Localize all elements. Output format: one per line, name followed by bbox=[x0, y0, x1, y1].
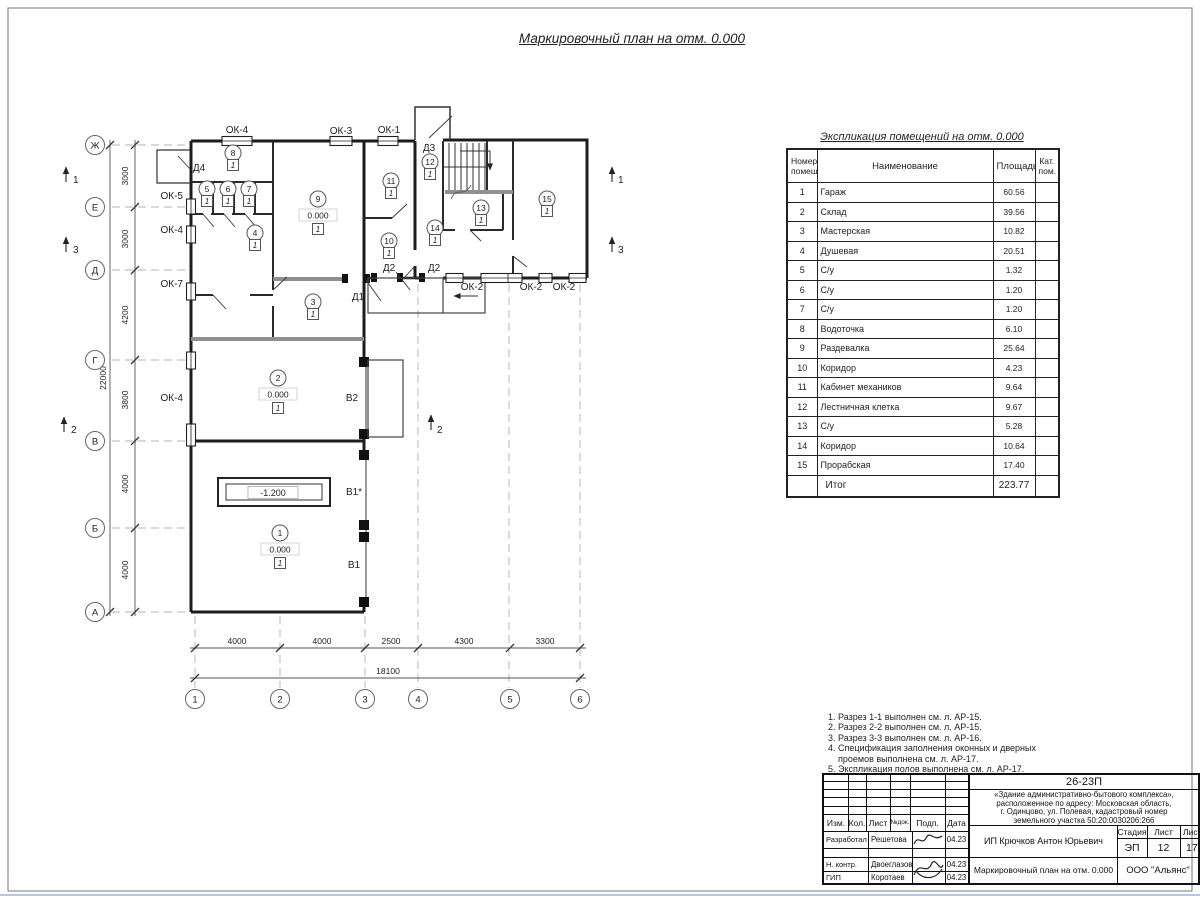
tb-header-sheet: Лист bbox=[1147, 825, 1180, 838]
section-marks: 1 3 2 1 3 2 bbox=[64, 167, 624, 436]
dim-left-6: 4000 bbox=[120, 560, 130, 579]
inspection-pit: -1.200 bbox=[218, 478, 330, 506]
cell-category bbox=[1035, 339, 1059, 359]
cell-category bbox=[1035, 222, 1059, 242]
tb-role-developer: Разработал bbox=[824, 831, 870, 848]
cell-category bbox=[1035, 456, 1059, 476]
dim-bottom-total: 18100 bbox=[376, 666, 400, 676]
door-label: Д1 bbox=[352, 292, 365, 303]
cell-area: 4.23 bbox=[993, 358, 1035, 378]
section-mark-label: 3 bbox=[618, 245, 624, 256]
tb-sheets-total: 17 bbox=[1181, 838, 1200, 857]
table-row: 7С/у1.20 bbox=[787, 300, 1059, 320]
door-label: Д3 bbox=[423, 143, 436, 154]
tb-header-stage: Стадия bbox=[1117, 825, 1147, 838]
axis-label: 1 bbox=[192, 695, 197, 706]
tb-sheet-number: 12 bbox=[1147, 838, 1180, 857]
cell-number: 6 bbox=[787, 280, 817, 300]
room-category: 1 bbox=[231, 161, 235, 170]
table-row: 4Душевая20.51 bbox=[787, 241, 1059, 261]
title-block: Изм. Кол. Лист №док. Подп. Дата Разработ… bbox=[822, 773, 1200, 885]
cell-area: 1.20 bbox=[993, 280, 1035, 300]
room-category: 1 bbox=[433, 236, 437, 245]
room-category: 1 bbox=[545, 207, 549, 216]
cell-category bbox=[1035, 436, 1059, 456]
room-number: 12 bbox=[425, 157, 435, 167]
room-number: 1 bbox=[278, 528, 283, 538]
cell-number: 15 bbox=[787, 456, 817, 476]
window-label: ОК-2 bbox=[461, 282, 484, 293]
tb-role-ncontrol: Н. контр. bbox=[824, 857, 870, 871]
axis-label: 2 bbox=[277, 695, 282, 706]
dim-left-1: 3000 bbox=[120, 166, 130, 185]
tb-header-izm: Изм. bbox=[824, 814, 848, 831]
table-row: 12Лестничная клетка9.67 bbox=[787, 397, 1059, 417]
door-label: Д4 bbox=[193, 163, 206, 174]
room-number: 15 bbox=[542, 194, 552, 204]
total-area: 223.77 bbox=[993, 475, 1035, 497]
room-number: 8 bbox=[231, 148, 236, 158]
cell-number: 13 bbox=[787, 417, 817, 437]
door-label: Д2 bbox=[383, 263, 396, 274]
window-label: ОК-1 bbox=[378, 125, 401, 136]
cell-number bbox=[787, 475, 817, 497]
ramp bbox=[157, 150, 190, 183]
axis-label: В bbox=[92, 437, 98, 448]
room-category: 1 bbox=[387, 249, 391, 258]
axis-label: Д bbox=[92, 266, 99, 277]
cell-category bbox=[1035, 397, 1059, 417]
tb-header-kol: Кол. bbox=[848, 814, 866, 831]
table-header-row: Номерпомещ. Наименование Площадь Кат.пом… bbox=[787, 149, 1059, 183]
cell-area: 6.10 bbox=[993, 319, 1035, 339]
cell-number: 5 bbox=[787, 261, 817, 281]
section-mark-label: 3 bbox=[73, 245, 79, 256]
table-row: 14Коридор10.64 bbox=[787, 436, 1059, 456]
cell-category bbox=[1035, 475, 1059, 497]
dimension-texts: 3000 3000 4200 3800 4000 4000 22000 4000… bbox=[98, 166, 555, 676]
cell-number: 8 bbox=[787, 319, 817, 339]
cell-area: 9.67 bbox=[993, 397, 1035, 417]
room-number: 3 bbox=[311, 297, 316, 307]
axis-label: Е bbox=[92, 203, 98, 214]
table-row: 9Раздевалка25.64 bbox=[787, 339, 1059, 359]
dim-left-3: 4200 bbox=[120, 305, 130, 324]
tb-company: ООО "Альянс" bbox=[1118, 857, 1198, 883]
cell-category bbox=[1035, 378, 1059, 398]
cell-name: Прорабская bbox=[817, 456, 993, 476]
dim-bottom-3: 2500 bbox=[382, 636, 401, 646]
cell-number: 4 bbox=[787, 241, 817, 261]
room-number: 2 bbox=[276, 373, 281, 383]
gate-label: В1* bbox=[346, 487, 362, 498]
section-mark-label: 1 bbox=[73, 175, 79, 186]
cell-area: 25.64 bbox=[993, 339, 1035, 359]
window-label: ОК-3 bbox=[330, 126, 353, 137]
tb-header-sheets: Листов bbox=[1181, 825, 1200, 838]
total-label: Итог bbox=[817, 475, 993, 497]
table-row: 2Склад39.56 bbox=[787, 202, 1059, 222]
cell-number: 12 bbox=[787, 397, 817, 417]
table-row: 6С/у1.20 bbox=[787, 280, 1059, 300]
cell-name: Водоточка bbox=[817, 319, 993, 339]
cell-name: Душевая bbox=[817, 241, 993, 261]
cell-category bbox=[1035, 202, 1059, 222]
window-label: ОК-4 bbox=[226, 125, 249, 136]
gate-label: В1 bbox=[348, 560, 361, 571]
col-header-number: Номерпомещ. bbox=[787, 149, 817, 183]
tb-date-gip: 04.23 bbox=[945, 871, 968, 883]
room-number: 14 bbox=[430, 223, 440, 233]
table-row: 1Гараж60.56 bbox=[787, 183, 1059, 203]
cell-name: Кабинет механиков bbox=[817, 378, 993, 398]
tb-date-developer: 04.23 bbox=[945, 831, 968, 848]
table-row: 11Кабинет механиков9.64 bbox=[787, 378, 1059, 398]
gate-label: В2 bbox=[346, 393, 359, 404]
cell-name: Лестничная клетка bbox=[817, 397, 993, 417]
cell-area: 9.64 bbox=[993, 378, 1035, 398]
cell-category bbox=[1035, 280, 1059, 300]
cell-number: 7 bbox=[787, 300, 817, 320]
room-category: 1 bbox=[226, 197, 230, 206]
window-label: ОК-4 bbox=[161, 393, 184, 404]
cell-name: Мастерская bbox=[817, 222, 993, 242]
room-number: 10 bbox=[384, 236, 394, 246]
tb-header-list: Лист bbox=[866, 814, 890, 831]
cell-category bbox=[1035, 319, 1059, 339]
tb-name-gip: Коротаев bbox=[869, 871, 914, 883]
axis-label: 3 bbox=[362, 695, 367, 706]
tb-header-podp: Подп. bbox=[910, 814, 945, 831]
sheet-notes: 1. Разрез 1-1 выполнен см. л. АР-15. 2. … bbox=[828, 712, 1036, 774]
room-number: 6 bbox=[226, 184, 231, 194]
gate-platform bbox=[368, 360, 403, 437]
cell-number: 2 bbox=[787, 202, 817, 222]
cell-name: Коридор bbox=[817, 358, 993, 378]
table-row: 8Водоточка6.10 bbox=[787, 319, 1059, 339]
dim-bottom-1: 4000 bbox=[228, 636, 247, 646]
axis-label: А bbox=[92, 608, 99, 619]
axis-label: 5 bbox=[507, 695, 512, 706]
cell-area: 10.82 bbox=[993, 222, 1035, 242]
dim-bottom-2: 4000 bbox=[313, 636, 332, 646]
table-row: 15Прорабская17.40 bbox=[787, 456, 1059, 476]
room-elevation: 0.000 bbox=[307, 211, 329, 221]
tb-stage: ЭП bbox=[1117, 838, 1147, 857]
axis-label: Б bbox=[92, 524, 98, 535]
tb-header-data: Дата bbox=[945, 814, 968, 831]
tb-header-ndok: №док. bbox=[890, 814, 910, 831]
tb-project-description: «Здание административно-бытового комплек… bbox=[970, 791, 1198, 825]
room-number: 7 bbox=[247, 184, 252, 194]
cell-category bbox=[1035, 358, 1059, 378]
dim-left-5: 4000 bbox=[120, 474, 130, 493]
tb-doc-title: Маркировочный план на отм. 0.000 bbox=[970, 857, 1117, 883]
dim-left-total: 22000 bbox=[98, 366, 108, 390]
cell-number: 14 bbox=[787, 436, 817, 456]
cell-category bbox=[1035, 300, 1059, 320]
cell-category bbox=[1035, 183, 1059, 203]
door-label: Д2 bbox=[428, 263, 441, 274]
table-row: 3Мастерская10.82 bbox=[787, 222, 1059, 242]
cell-name: Склад bbox=[817, 202, 993, 222]
tb-name-developer: Решетова bbox=[869, 831, 914, 848]
table-total-row: Итог223.77 bbox=[787, 475, 1059, 497]
window-label: ОК-2 bbox=[553, 282, 576, 293]
section-mark-label: 2 bbox=[437, 425, 443, 436]
cell-name: Гараж bbox=[817, 183, 993, 203]
tb-project-code: 26-23П bbox=[970, 775, 1198, 789]
cell-category bbox=[1035, 417, 1059, 437]
room-category: 1 bbox=[389, 189, 393, 198]
cell-area: 20.51 bbox=[993, 241, 1035, 261]
cell-name: С/у bbox=[817, 261, 993, 281]
cell-area: 5.28 bbox=[993, 417, 1035, 437]
tb-role-gip: ГИП bbox=[824, 871, 870, 883]
room-category: 1 bbox=[278, 559, 282, 568]
pit-elevation-label: -1.200 bbox=[260, 488, 286, 498]
cell-area: 39.56 bbox=[993, 202, 1035, 222]
room-number: 13 bbox=[476, 203, 486, 213]
axis-label: Г bbox=[92, 356, 97, 367]
tb-date-ncontrol: 04.23 bbox=[945, 857, 968, 871]
room-elevation: 0.000 bbox=[267, 390, 289, 400]
cell-name: С/у bbox=[817, 300, 993, 320]
cell-area: 1.32 bbox=[993, 261, 1035, 281]
table-row: 5С/у1.32 bbox=[787, 261, 1059, 281]
room-markers: 1 2 3 4 5 6 7 8 9 10 11 12 13 14 15 0.00… bbox=[199, 145, 555, 569]
cell-area: 17.40 bbox=[993, 456, 1035, 476]
room-number: 9 bbox=[316, 194, 321, 204]
room-category: 1 bbox=[276, 404, 280, 413]
room-category: 1 bbox=[428, 170, 432, 179]
cell-number: 9 bbox=[787, 339, 817, 359]
room-category: 1 bbox=[311, 310, 315, 319]
room-category: 1 bbox=[316, 225, 320, 234]
cell-area: 10.64 bbox=[993, 436, 1035, 456]
room-category: 1 bbox=[253, 241, 257, 250]
cell-name: Раздевалка bbox=[817, 339, 993, 359]
room-number: 11 bbox=[387, 176, 396, 186]
cell-number: 3 bbox=[787, 222, 817, 242]
room-category: 1 bbox=[479, 216, 483, 225]
room-number: 4 bbox=[253, 228, 258, 238]
scan-edge-artifact bbox=[0, 894, 1200, 896]
tb-client: ИП Крючков Антон Юрьевич bbox=[970, 825, 1117, 857]
window-label: ОК-7 bbox=[161, 279, 184, 290]
window-label: ОК-4 bbox=[161, 225, 184, 236]
room-elevation: 0.000 bbox=[269, 545, 291, 555]
cell-number: 1 bbox=[787, 183, 817, 203]
window-label: ОК-2 bbox=[520, 282, 543, 293]
signature-developer bbox=[912, 832, 945, 848]
cell-number: 10 bbox=[787, 358, 817, 378]
col-header-name: Наименование bbox=[817, 149, 993, 183]
cell-category bbox=[1035, 241, 1059, 261]
walls bbox=[157, 107, 587, 612]
room-number: 5 bbox=[205, 184, 210, 194]
room-schedule-table: Номерпомещ. Наименование Площадь Кат.пом… bbox=[786, 148, 1060, 498]
dim-bottom-5: 3300 bbox=[536, 636, 555, 646]
col-header-category: Кат.пом. bbox=[1035, 149, 1059, 183]
col-header-area: Площадь bbox=[993, 149, 1035, 183]
cell-category bbox=[1035, 261, 1059, 281]
table-row: 10Коридор4.23 bbox=[787, 358, 1059, 378]
section-mark-label: 2 bbox=[71, 425, 77, 436]
axis-label: 6 bbox=[577, 695, 582, 706]
axis-label: Ж bbox=[91, 141, 100, 152]
axis-label: 4 bbox=[415, 695, 420, 706]
window-label: ОК-5 bbox=[161, 191, 184, 202]
cell-name: С/у bbox=[817, 417, 993, 437]
section-mark-label: 1 bbox=[618, 175, 624, 186]
dim-left-2: 3000 bbox=[120, 229, 130, 248]
room-category: 1 bbox=[205, 197, 209, 206]
cell-area: 60.56 bbox=[993, 183, 1035, 203]
dim-left-4: 3800 bbox=[120, 390, 130, 409]
cell-name: С/у bbox=[817, 280, 993, 300]
dim-bottom-4: 4300 bbox=[455, 636, 474, 646]
cell-name: Коридор bbox=[817, 436, 993, 456]
room-category: 1 bbox=[247, 197, 251, 206]
signature-ncontrol-gip bbox=[912, 855, 945, 883]
tb-name-ncontrol: Двоеглазов bbox=[869, 857, 914, 871]
table-row: 13С/у5.28 bbox=[787, 417, 1059, 437]
cell-area: 1.20 bbox=[993, 300, 1035, 320]
cell-number: 11 bbox=[787, 378, 817, 398]
